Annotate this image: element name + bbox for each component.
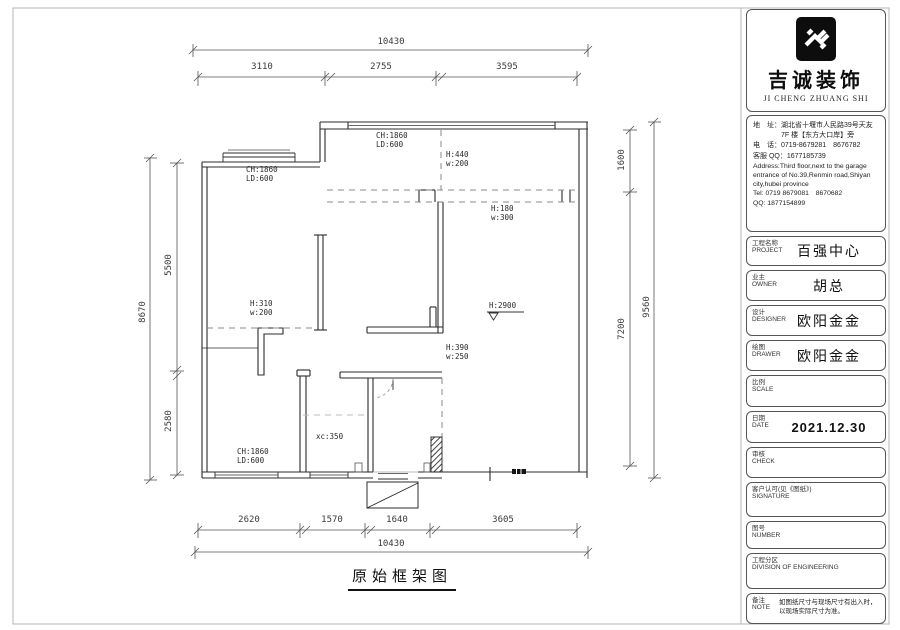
contact-address-en2: entrance of No.39,Renmin road,Shiyan xyxy=(753,171,879,180)
dim-right-total: 9560 xyxy=(642,284,652,330)
dim-top-seg3: 3595 xyxy=(484,62,530,72)
annotation-window-left: CH:1860LD:600 xyxy=(246,165,278,183)
titleblock-row-number: 图号NUMBER xyxy=(746,521,886,549)
scale-value xyxy=(777,376,881,406)
contact-address-en3: city,hubei province xyxy=(753,180,879,189)
annotation-beam-mid: H:180w:300 xyxy=(491,204,514,222)
contact-address-en1: Address:Third floor,next to the garage xyxy=(753,162,879,171)
door-symbols xyxy=(355,378,430,508)
dim-bottom-seg3: 1640 xyxy=(374,515,420,525)
annotation-xc: xc:350 xyxy=(316,432,343,441)
dim-top-seg1: 3110 xyxy=(239,62,285,72)
titleblock-row-scale: 比例SCALE xyxy=(746,375,886,407)
signature-value xyxy=(777,483,881,516)
dim-left-seg2: 2580 xyxy=(164,398,174,444)
contact-qq: 客服 QQ：1677185739 xyxy=(753,152,879,162)
designer-value: 欧阳金金 xyxy=(777,306,881,335)
dim-top-total: 10430 xyxy=(368,37,414,47)
company-name-en: JI CHENG ZHUANG SHI xyxy=(747,94,885,103)
titleblock-row-drawer: 绘图DRAWER 欧阳金金 xyxy=(746,340,886,371)
project-value: 百强中心 xyxy=(777,237,881,265)
dim-bottom-seg1: 2620 xyxy=(226,515,272,525)
dim-top-seg2: 2755 xyxy=(358,62,404,72)
annotation-window-bottom: CH:1860LD:600 xyxy=(237,447,269,465)
contact-address-line2: 7F 楼【东方大口岸】旁 xyxy=(753,131,879,141)
plan-title: 原始框架图 xyxy=(348,565,456,591)
date-value: 2021.12.30 xyxy=(777,412,881,442)
number-value xyxy=(777,522,881,548)
dim-left-seg1: 5500 xyxy=(164,242,174,288)
titleblock-row-designer: 设计DESIGNER 欧阳金金 xyxy=(746,305,886,336)
note-value: 如图纸尺寸与现场尺寸有出入时，以现场实际尺寸为准。 xyxy=(779,599,882,616)
contact-address-line1: 地 址：湖北省十堰市人民路39号天友 xyxy=(753,121,879,131)
contact-phone: 电 话：0719-8679281 8676782 xyxy=(753,141,879,151)
contact-tel-en: Tel: 0719 8679081 8670682 xyxy=(753,189,879,198)
titleblock-row-signature: 客户认可(见《图纸》)SIGNATURE xyxy=(746,482,886,517)
contact-qq-en: QQ: 1877154899 xyxy=(753,199,879,208)
titleblock-row-check: 审核CHECK xyxy=(746,447,886,478)
titleblock-contact-cell: 地 址：湖北省十堰市人民路39号天友 7F 楼【东方大口岸】旁 电 话：0719… xyxy=(746,115,886,232)
dim-right-seg2: 7200 xyxy=(617,306,627,352)
dim-bottom-seg2: 1570 xyxy=(309,515,355,525)
column-hatch xyxy=(431,437,442,472)
titleblock-row-note: 备注NOTE 如图纸尺寸与现场尺寸有出入时，以现场实际尺寸为准。 xyxy=(746,593,886,624)
annotation-window-top: CH:1860LD:600 xyxy=(376,131,408,149)
titleblock-logo-cell: 吉诚装饰 JI CHENG ZHUANG SHI xyxy=(746,9,886,112)
dim-left-total: 8670 xyxy=(138,289,148,335)
jicheng-logo-icon xyxy=(796,17,836,61)
annotation-beam-low: H:390w:250 xyxy=(446,343,469,361)
annotation-ceiling-height: H:2900 xyxy=(489,301,516,310)
division-value xyxy=(777,554,881,588)
annotation-beam-left: H:310w:200 xyxy=(250,299,273,317)
titleblock-row-division: 工程分区DIVISION OF ENGINEERING xyxy=(746,553,886,589)
titleblock-row-project: 工程名称PROJECT 百强中心 xyxy=(746,236,886,266)
company-name: 吉诚装饰 xyxy=(747,64,885,93)
titleblock-row-date: 日期DATE 2021.12.30 xyxy=(746,411,886,443)
check-value xyxy=(777,448,881,477)
annotation-beam-top: H:440w:200 xyxy=(446,150,469,168)
drawer-value: 欧阳金金 xyxy=(777,341,881,370)
dim-right-seg1: 1600 xyxy=(617,137,627,183)
drawing-sheet: 10430 3110 2755 3595 2620 1570 1640 3605… xyxy=(0,0,900,630)
elevation-marker xyxy=(487,312,524,320)
owner-value: 胡总 xyxy=(777,271,881,300)
dim-bottom-total: 10430 xyxy=(368,539,414,549)
titleblock-row-owner: 业主OWNER 胡总 xyxy=(746,270,886,301)
dim-bottom-seg4: 3605 xyxy=(480,515,526,525)
